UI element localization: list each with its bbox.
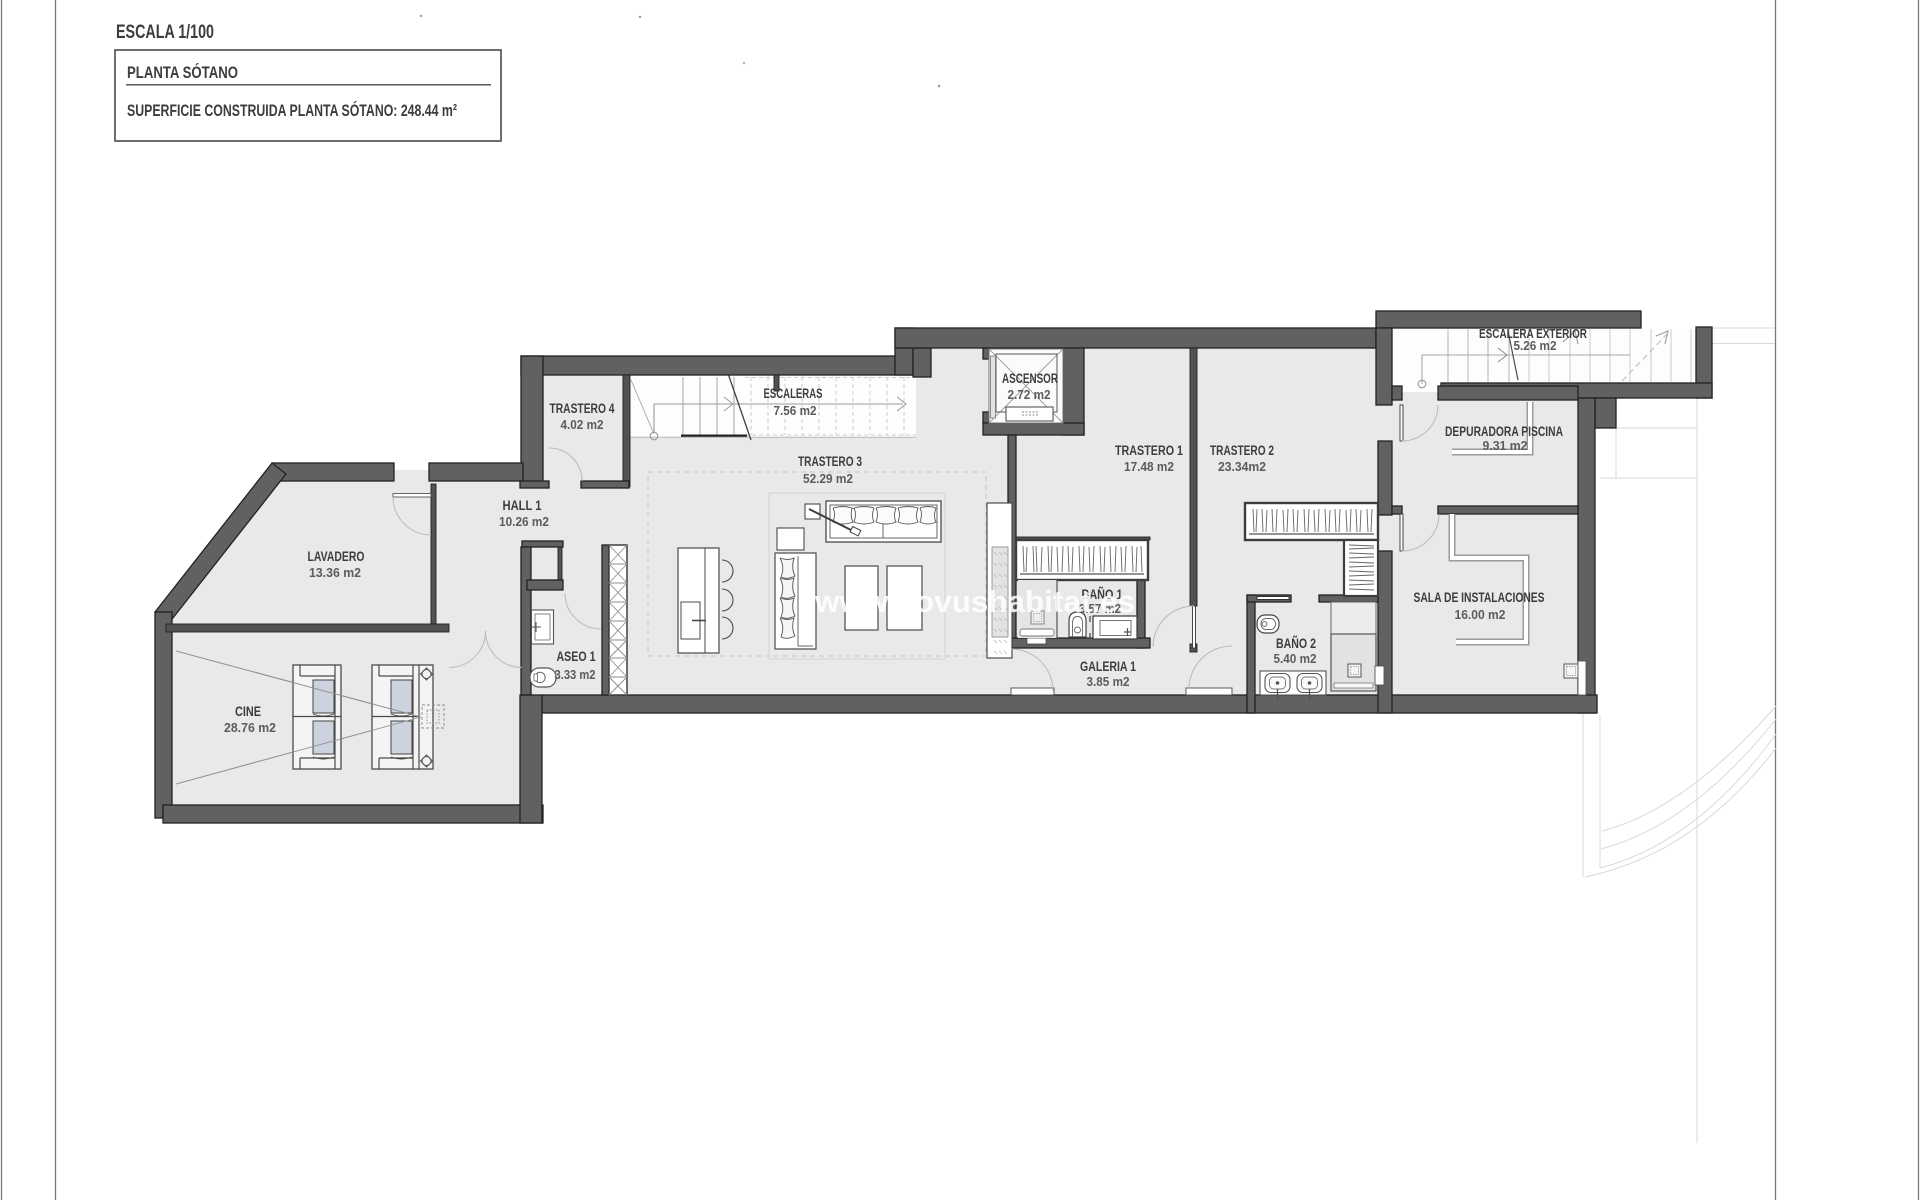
svg-text:5.26 m2: 5.26 m2	[1514, 339, 1557, 353]
svg-text:52.29 m2: 52.29 m2	[803, 471, 853, 486]
svg-text:TRASTERO 2: TRASTERO 2	[1210, 443, 1274, 458]
svg-text:www.novushabitat.es: www.novushabitat.es	[814, 584, 1135, 619]
svg-text:TRASTERO 3: TRASTERO 3	[798, 454, 862, 469]
svg-text:28.76 m2: 28.76 m2	[224, 720, 276, 735]
svg-text:TRASTERO 1: TRASTERO 1	[1115, 443, 1183, 458]
svg-text:16.00 m2: 16.00 m2	[1455, 607, 1506, 622]
svg-text:3.33 m2: 3.33 m2	[555, 667, 596, 682]
svg-text:ESCALA 1/100: ESCALA 1/100	[116, 22, 214, 43]
svg-text:7.56 m2: 7.56 m2	[774, 403, 817, 418]
svg-text:CINE: CINE	[235, 704, 261, 719]
svg-text:13.36 m2: 13.36 m2	[309, 565, 361, 580]
svg-text:PLANTA SÓTANO: PLANTA SÓTANO	[127, 63, 238, 82]
svg-text:HALL 1: HALL 1	[503, 498, 542, 513]
svg-text:4.02 m2: 4.02 m2	[561, 417, 604, 432]
svg-text:10.26 m2: 10.26 m2	[499, 514, 549, 529]
svg-text:ASCENSOR: ASCENSOR	[1002, 371, 1058, 386]
svg-text:GALERIA 1: GALERIA 1	[1080, 659, 1136, 674]
svg-text:2.72 m2: 2.72 m2	[1008, 387, 1051, 402]
svg-text:SALA DE INSTALACIONES: SALA DE INSTALACIONES	[1414, 590, 1545, 605]
svg-text:BAÑO 2: BAÑO 2	[1276, 636, 1316, 651]
svg-text:DEPURADORA PISCINA: DEPURADORA PISCINA	[1445, 424, 1563, 439]
svg-text:17.48 m2: 17.48 m2	[1124, 459, 1174, 474]
svg-text:SUPERFICIE CONSTRUIDA PLANTA S: SUPERFICIE CONSTRUIDA PLANTA SÓTANO: 248…	[127, 101, 457, 120]
svg-text:5.40 m2: 5.40 m2	[1274, 651, 1317, 666]
svg-text:9.31 m2: 9.31 m2	[1483, 438, 1528, 453]
svg-text:3.85 m2: 3.85 m2	[1087, 674, 1130, 689]
svg-text:TRASTERO 4: TRASTERO 4	[550, 401, 615, 416]
svg-text:ESCALERAS: ESCALERAS	[764, 386, 823, 401]
svg-text:ASEO 1: ASEO 1	[557, 649, 596, 664]
svg-text:23.34m2: 23.34m2	[1218, 459, 1266, 474]
svg-text:LAVADERO: LAVADERO	[308, 549, 365, 564]
